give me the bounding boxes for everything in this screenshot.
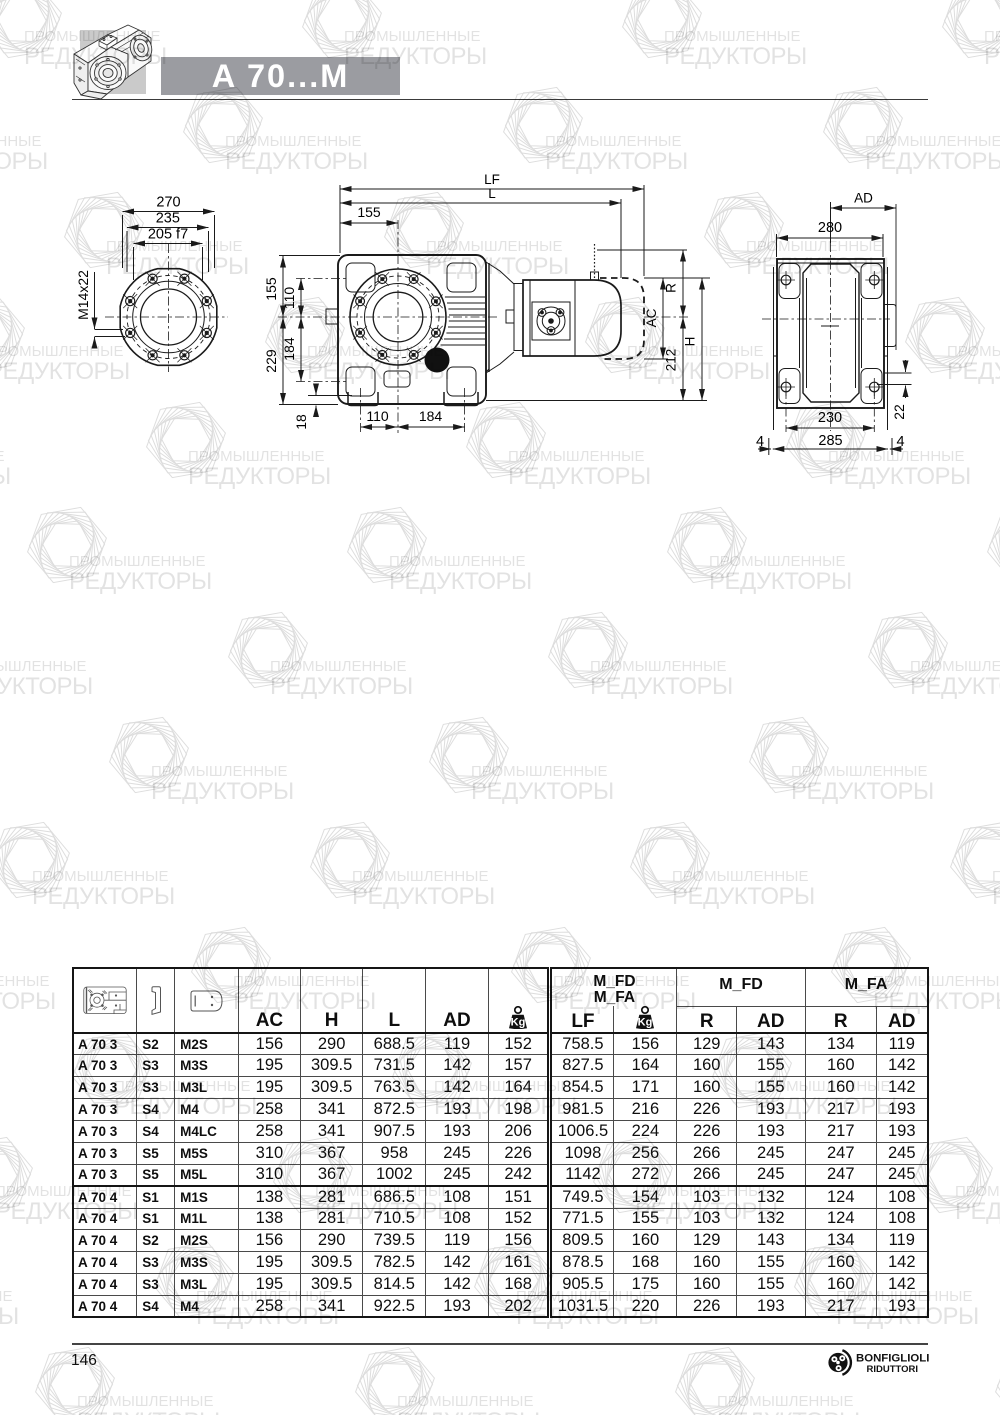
svg-text:18: 18: [293, 414, 309, 430]
svg-text:155: 155: [263, 277, 279, 301]
svg-text:235: 235: [156, 211, 180, 227]
svg-text:280: 280: [818, 220, 842, 236]
svg-text:AD: AD: [854, 191, 873, 206]
svg-text:H: H: [683, 337, 698, 347]
svg-text:229: 229: [263, 349, 279, 373]
svg-text:M14x22: M14x22: [75, 270, 91, 320]
svg-text:184: 184: [419, 408, 443, 424]
svg-text:110: 110: [366, 408, 389, 424]
svg-text:22: 22: [891, 404, 907, 420]
svg-text:110: 110: [281, 287, 297, 310]
svg-text:LF: LF: [484, 172, 500, 187]
svg-text:212: 212: [664, 349, 679, 372]
svg-text:Kg: Kg: [511, 1017, 526, 1029]
svg-text:4: 4: [896, 434, 904, 450]
svg-text:Kg: Kg: [638, 1017, 653, 1029]
svg-text:285: 285: [818, 433, 842, 449]
svg-text:4: 4: [756, 434, 764, 450]
svg-text:155: 155: [357, 204, 381, 220]
svg-text:BONFIGLIOLI: BONFIGLIOLI: [856, 1353, 929, 1365]
svg-text:205 f7: 205 f7: [148, 227, 188, 243]
svg-text:230: 230: [818, 410, 842, 426]
svg-text:AC: AC: [644, 308, 659, 327]
svg-text:L: L: [488, 186, 496, 201]
svg-text:R: R: [664, 283, 679, 293]
svg-text:RIDUTTORI: RIDUTTORI: [867, 1364, 919, 1375]
svg-text:270: 270: [156, 195, 180, 211]
